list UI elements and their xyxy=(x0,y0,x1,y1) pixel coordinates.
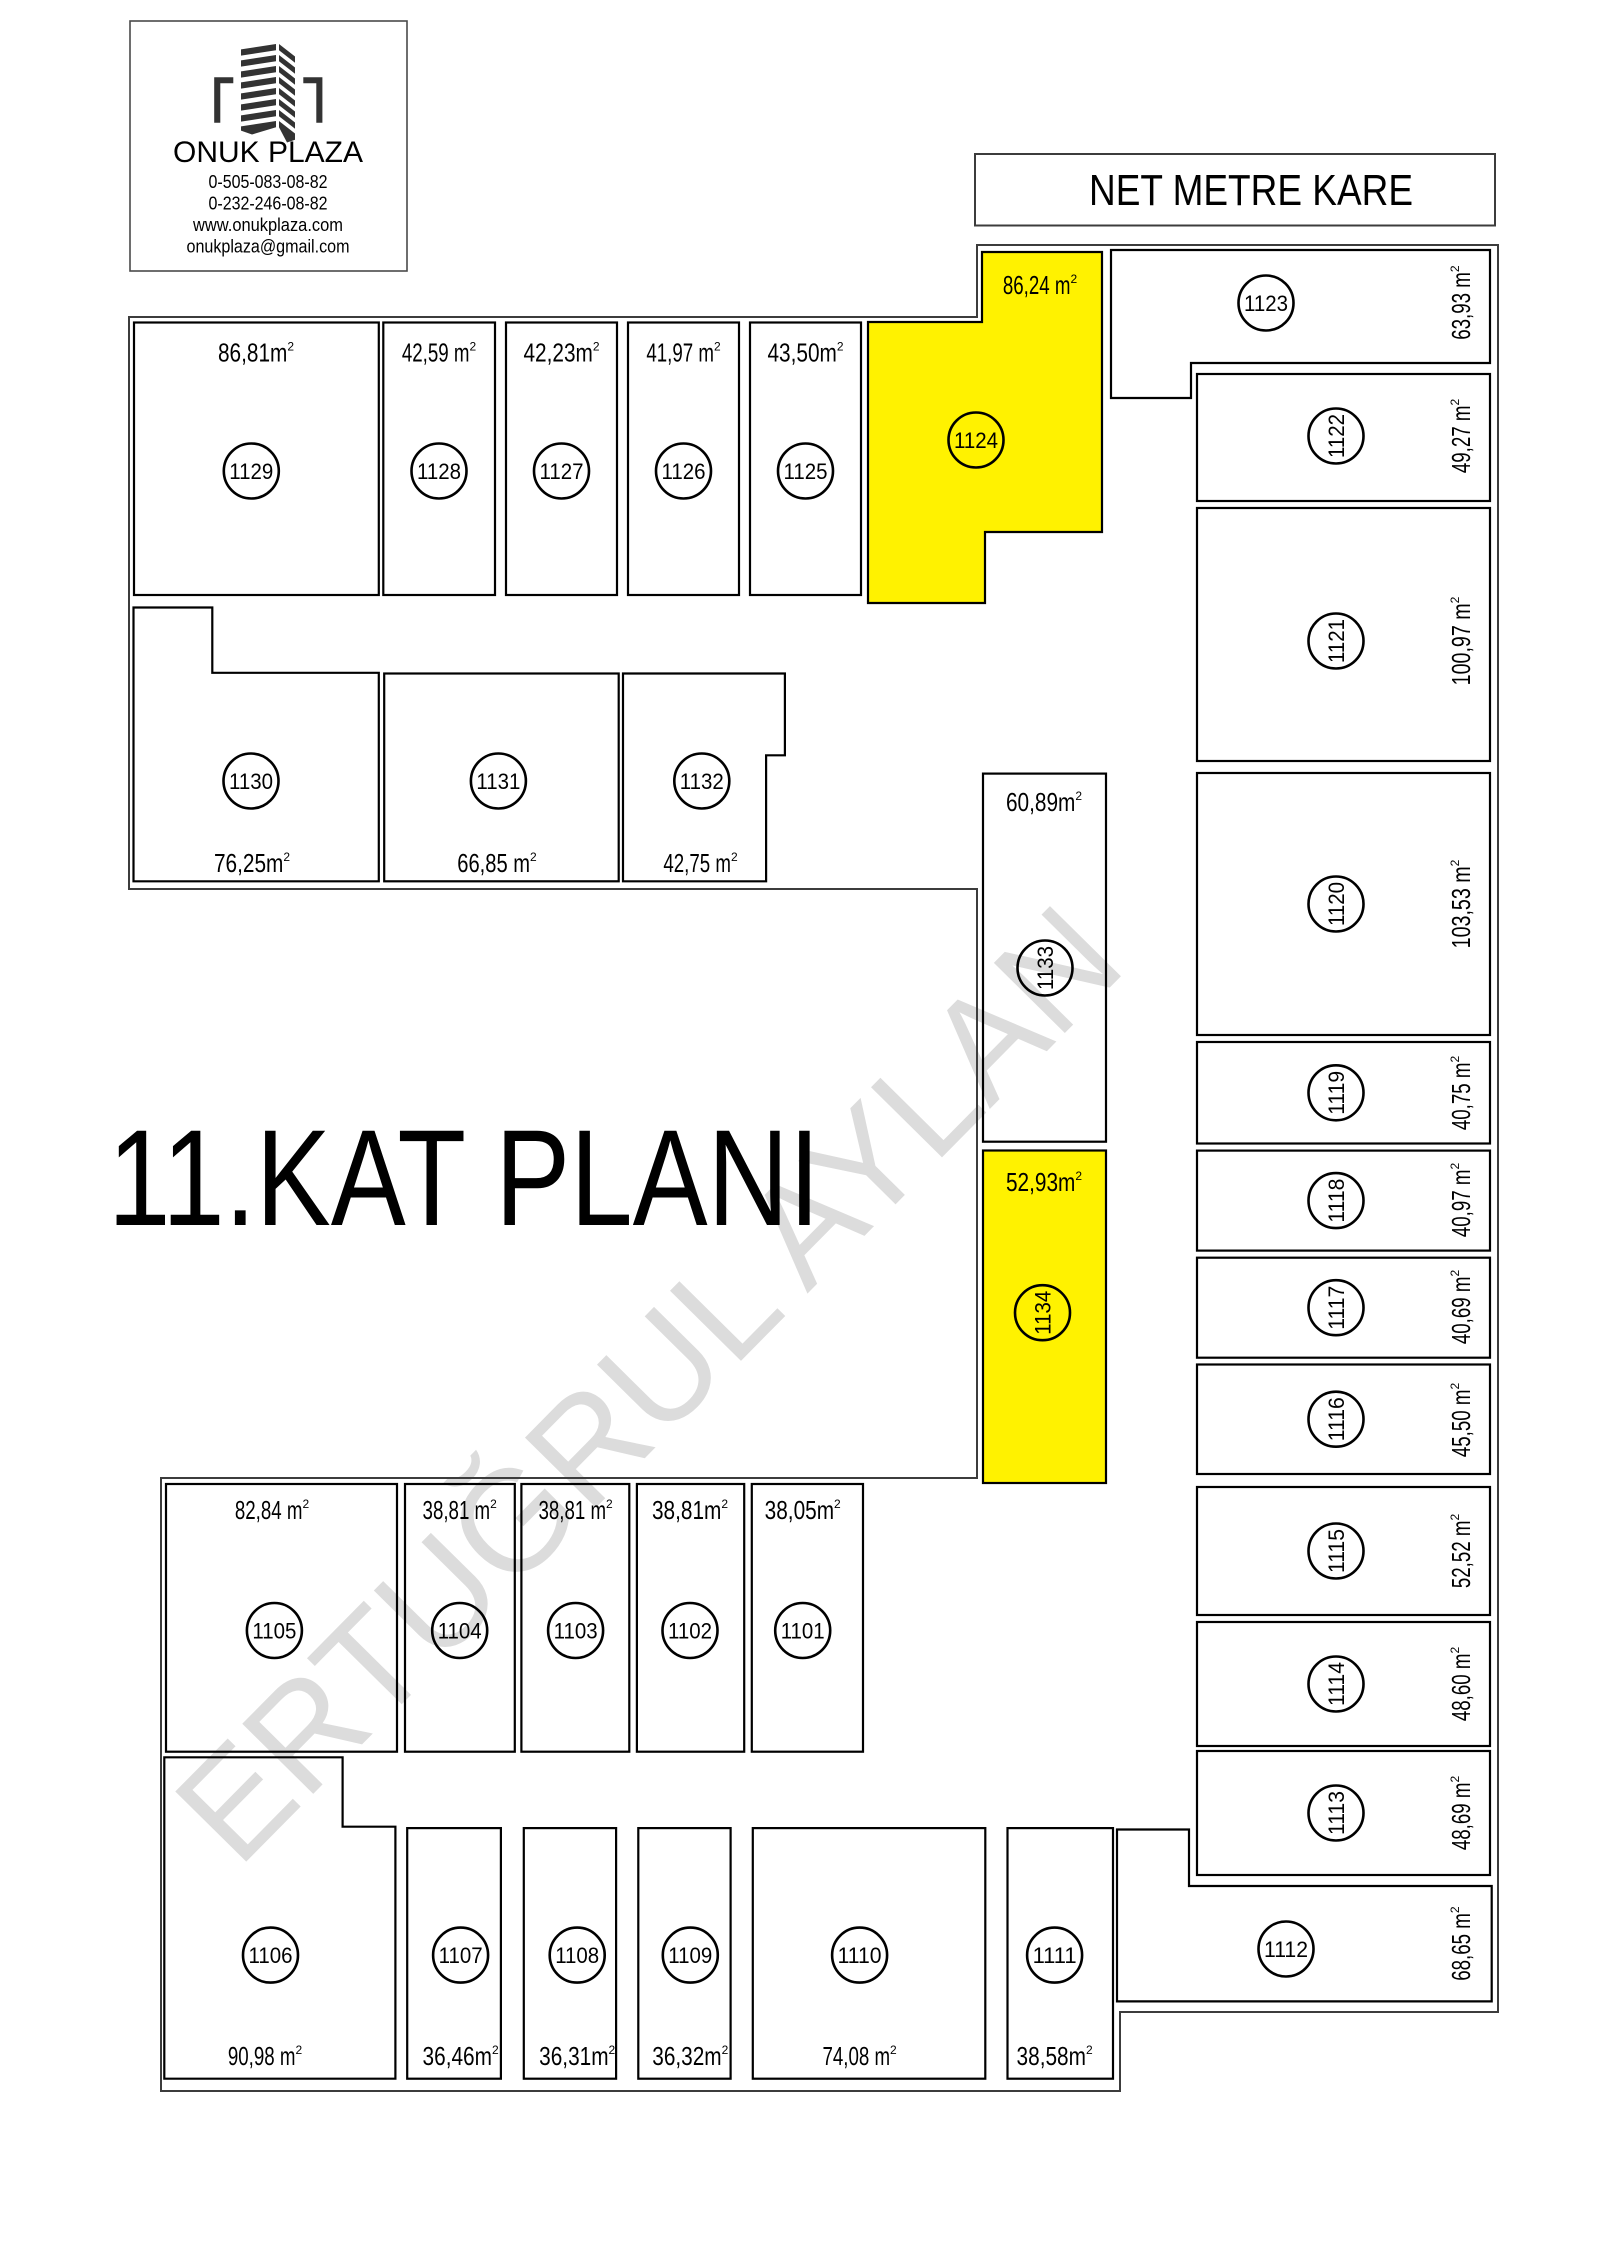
svg-text:42,23m2: 42,23m2 xyxy=(523,338,599,368)
svg-text:1128: 1128 xyxy=(417,459,461,484)
svg-text:1130: 1130 xyxy=(229,769,273,794)
svg-text:45,50 m2: 45,50 m2 xyxy=(1446,1383,1476,1458)
svg-text:1133: 1133 xyxy=(1033,946,1058,990)
svg-text:63,93 m2: 63,93 m2 xyxy=(1446,265,1476,340)
svg-text:49,27 m2: 49,27 m2 xyxy=(1446,399,1476,474)
svg-text:90,98 m2: 90,98 m2 xyxy=(228,2041,303,2071)
svg-text:1127: 1127 xyxy=(540,459,584,484)
svg-text:1125: 1125 xyxy=(784,459,828,484)
svg-text:86,24 m2: 86,24 m2 xyxy=(1003,270,1078,300)
svg-text:48,60 m2: 48,60 m2 xyxy=(1446,1647,1476,1722)
svg-text:1124: 1124 xyxy=(954,428,998,453)
svg-text:1102: 1102 xyxy=(668,1619,712,1644)
svg-text:1107: 1107 xyxy=(439,1943,483,1968)
svg-text:0-505-083-08-82: 0-505-083-08-82 xyxy=(209,172,328,192)
svg-text:onukplaza@gmail.com: onukplaza@gmail.com xyxy=(187,237,350,257)
svg-text:100,97 m2: 100,97 m2 xyxy=(1446,596,1476,685)
svg-text:43,50m2: 43,50m2 xyxy=(767,338,843,368)
svg-text:36,31m2: 36,31m2 xyxy=(539,2041,615,2071)
svg-text:1117: 1117 xyxy=(1324,1286,1349,1330)
svg-text:86,81m2: 86,81m2 xyxy=(218,338,294,368)
svg-text:38,05m2: 38,05m2 xyxy=(765,1495,841,1525)
svg-text:1104: 1104 xyxy=(438,1619,482,1644)
svg-text:38,81 m2: 38,81 m2 xyxy=(423,1495,498,1525)
svg-text:40,69 m2: 40,69 m2 xyxy=(1446,1270,1476,1345)
svg-text:11.KAT PLANI: 11.KAT PLANI xyxy=(108,1102,820,1255)
svg-text:40,75 m2: 40,75 m2 xyxy=(1446,1056,1476,1131)
svg-text:1108: 1108 xyxy=(555,1943,599,1968)
svg-text:0-232-246-08-82: 0-232-246-08-82 xyxy=(209,194,328,214)
svg-text:1110: 1110 xyxy=(838,1943,882,1968)
svg-text:1115: 1115 xyxy=(1324,1529,1349,1573)
svg-text:1126: 1126 xyxy=(662,459,706,484)
svg-text:52,93m2: 52,93m2 xyxy=(1006,1167,1082,1197)
svg-text:52,52 m2: 52,52 m2 xyxy=(1446,1514,1476,1589)
svg-text:1112: 1112 xyxy=(1264,1937,1308,1962)
svg-text:60,89m2: 60,89m2 xyxy=(1006,787,1082,817)
svg-text:1131: 1131 xyxy=(476,769,520,794)
svg-text:42,59 m2: 42,59 m2 xyxy=(402,338,477,368)
svg-text:1106: 1106 xyxy=(249,1943,293,1968)
svg-text:1134: 1134 xyxy=(1031,1291,1056,1335)
svg-text:76,25m2: 76,25m2 xyxy=(214,848,290,878)
svg-text:38,81m2: 38,81m2 xyxy=(652,1495,728,1525)
svg-text:38,81 m2: 38,81 m2 xyxy=(538,1495,613,1525)
svg-text:1122: 1122 xyxy=(1324,414,1349,458)
svg-text:ONUK PLAZA: ONUK PLAZA xyxy=(173,136,363,169)
svg-text:82,84 m2: 82,84 m2 xyxy=(235,1495,310,1525)
svg-text:1103: 1103 xyxy=(554,1619,598,1644)
svg-text:NET METRE KARE: NET METRE KARE xyxy=(1089,166,1413,215)
svg-text:1111: 1111 xyxy=(1033,1943,1077,1968)
svg-text:40,97 m2: 40,97 m2 xyxy=(1446,1163,1476,1238)
svg-text:36,32m2: 36,32m2 xyxy=(652,2041,728,2071)
svg-text:68,65 m2: 68,65 m2 xyxy=(1446,1906,1476,1981)
svg-text:74,08 m2: 74,08 m2 xyxy=(822,2041,897,2071)
svg-text:www.onukplaza.com: www.onukplaza.com xyxy=(192,215,343,235)
svg-text:38,58m2: 38,58m2 xyxy=(1017,2041,1093,2071)
svg-text:1116: 1116 xyxy=(1324,1397,1349,1441)
svg-text:1123: 1123 xyxy=(1244,291,1288,316)
svg-text:1101: 1101 xyxy=(781,1619,825,1644)
svg-text:1129: 1129 xyxy=(229,459,273,484)
svg-text:48,69 m2: 48,69 m2 xyxy=(1446,1776,1476,1851)
svg-text:1118: 1118 xyxy=(1324,1179,1349,1223)
svg-text:1121: 1121 xyxy=(1324,619,1349,663)
svg-text:1132: 1132 xyxy=(680,769,724,794)
svg-text:1119: 1119 xyxy=(1324,1071,1349,1115)
svg-text:1114: 1114 xyxy=(1324,1662,1349,1706)
svg-text:1113: 1113 xyxy=(1324,1791,1349,1835)
svg-text:66,85 m2: 66,85 m2 xyxy=(457,848,537,878)
svg-text:103,53 m2: 103,53 m2 xyxy=(1446,859,1476,948)
svg-text:42,75 m2: 42,75 m2 xyxy=(663,848,738,878)
svg-text:36,46m2: 36,46m2 xyxy=(423,2041,499,2071)
svg-text:1120: 1120 xyxy=(1324,882,1349,926)
svg-text:1105: 1105 xyxy=(252,1619,296,1644)
svg-text:1109: 1109 xyxy=(668,1943,712,1968)
svg-text:41,97 m2: 41,97 m2 xyxy=(646,338,721,368)
